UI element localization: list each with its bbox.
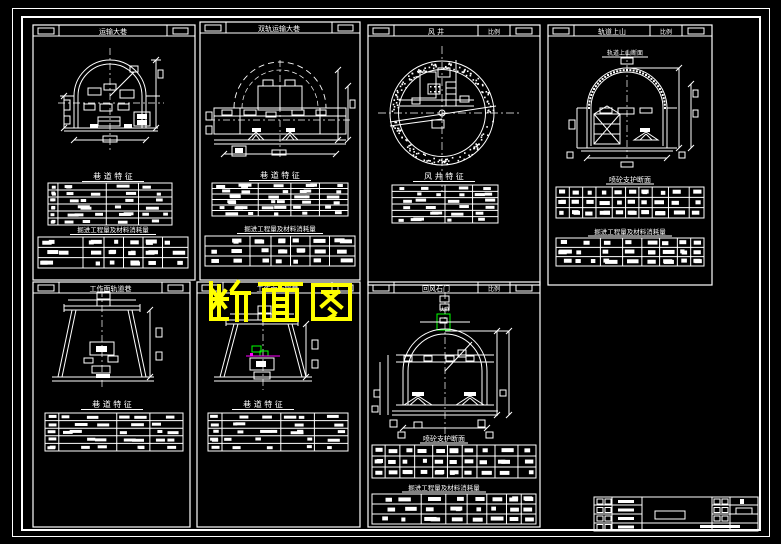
panel-2-title: 双轨运输大巷 xyxy=(258,24,300,33)
table xyxy=(38,237,188,268)
p1-qty-heading: 掘进工程量及材料消耗量 xyxy=(77,225,149,234)
table xyxy=(205,236,355,266)
p7-qty-heading: 掘进工程量及材料消耗量 xyxy=(408,483,480,492)
panel-4-scale-label: 比例 xyxy=(660,28,672,36)
table xyxy=(45,413,183,451)
table xyxy=(556,238,704,266)
table xyxy=(372,445,536,478)
p6-char-heading: 巷 道 特 征 xyxy=(243,399,283,409)
panel-frame-1: 运输大巷 xyxy=(33,25,195,280)
panel-7-drawing xyxy=(372,292,512,440)
table xyxy=(208,413,348,451)
panel-2-drawing xyxy=(206,60,355,158)
panel-7-scale-label: 比例 xyxy=(488,285,500,293)
glyph-tu xyxy=(313,285,350,319)
panel-3-title: 风 井 xyxy=(428,27,444,36)
title-block xyxy=(594,497,758,531)
table xyxy=(556,187,704,218)
p7-char-heading: 喷砼支护断面 xyxy=(423,434,465,443)
p1-char-heading: 巷 道 特 征 xyxy=(93,171,133,181)
p2-qty-heading: 掘进工程量及材料消耗量 xyxy=(244,224,316,233)
panel-4-title: 轨道上山 xyxy=(598,27,626,36)
p2-char-heading: 巷 道 特 征 xyxy=(260,170,300,180)
section-drawing-sheet: 运输大巷双轨运输大巷比例风 井比例轨道上山工作面轨道巷工作面运输巷比例回风石门巷… xyxy=(0,0,781,544)
table xyxy=(372,494,536,524)
panel-5-drawing xyxy=(52,290,162,390)
panel-4-drawing xyxy=(567,50,698,167)
sheet-border xyxy=(13,9,770,537)
p5-char-heading: 巷 道 特 征 xyxy=(92,399,132,409)
table xyxy=(212,183,348,216)
p4-char-heading: 喷砼支护断面 xyxy=(609,175,651,184)
panel-3-scale-label: 比例 xyxy=(488,28,500,36)
panel-3-drawing xyxy=(378,46,520,192)
drawing-content: 运输大巷双轨运输大巷比例风 井比例轨道上山工作面轨道巷工作面运输巷比例回风石门巷… xyxy=(33,22,758,531)
glyph-mian xyxy=(260,284,301,320)
panel-1-title: 运输大巷 xyxy=(99,27,127,36)
cad-canvas[interactable]: 断面图 运输大巷双轨运输大巷比例风 井比例轨道上山工作面轨道巷工作面运输巷比例回… xyxy=(0,0,781,544)
p3-char-heading: 风 井 特 征 xyxy=(424,171,464,181)
p4-subtitle: 轨道上山断面 xyxy=(607,49,643,57)
p4-qty-heading: 掘进工程量及材料消耗量 xyxy=(594,227,666,236)
panel-7-title: 回风石门 xyxy=(422,284,450,293)
table xyxy=(392,185,498,223)
panel-1-drawing xyxy=(58,48,164,152)
table xyxy=(48,183,172,225)
